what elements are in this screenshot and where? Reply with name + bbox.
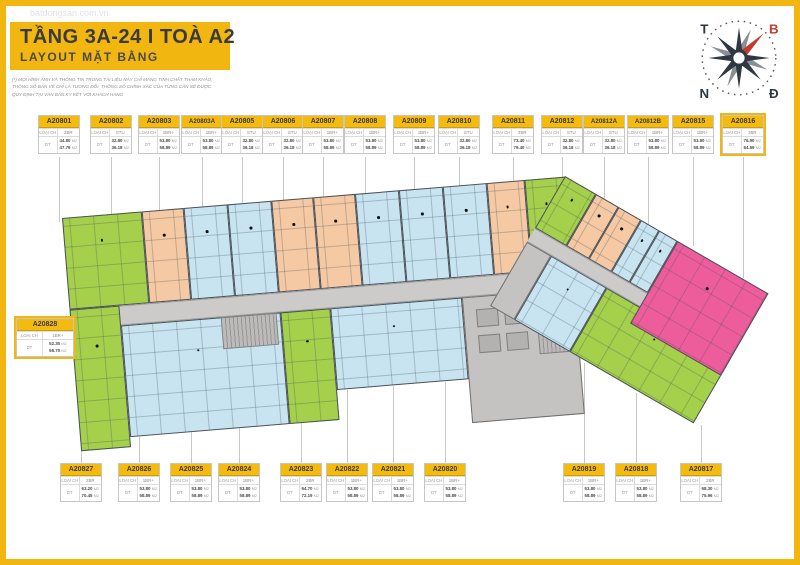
area-label: DT [345,137,364,153]
unit-card-id: A20815 [673,116,713,128]
type-label: LOẠI CH [681,477,700,484]
area-label: DT [119,485,138,501]
unit-card-id: A20801 [39,116,79,128]
unit-card-A20818: A20818LOẠI CH1BR+DT53.80 M258.89 M2 [615,463,657,502]
unit-areas: 53.80 M258.89 M2 [201,137,222,153]
unit-card-id: A20821 [373,464,413,476]
area-label: DT [628,137,647,153]
type-label: LOẠI CH [373,477,392,484]
unit-card-id: A20805 [222,116,262,128]
type-label: LOẠI CH [17,332,43,339]
type-label: LOẠI CH [39,129,58,136]
type-label: LOẠI CH [584,129,603,136]
unit-areas: 64.70 M272.19 M2 [300,485,321,501]
unit-areas: 52.30 M256.70 M2 [43,340,73,356]
area-label: DT [171,485,190,501]
area-label: DT [425,485,444,501]
unit-card-A20805: A20805LOẠI CHSTUDT32.80 M236.18 M2 [221,115,263,154]
unit-card-A20812A: A20812ALOẠI CHSTUDT32.80 M236.18 M2 [583,115,625,154]
unit-card-A20816: A20816LOẠI CH3BRDT76.90 M284.69 M2 [722,115,764,154]
plan-unit-A20806 [313,194,362,289]
area-label: DT [681,485,700,501]
unit-areas: 76.90 M284.69 M2 [742,137,763,153]
unit-type: STU [282,129,303,136]
unit-type: 2BR [512,129,533,136]
unit-card-id: A20807 [303,116,343,128]
unit-card-id: A20828 [17,319,73,331]
unit-type: STU [561,129,582,136]
unit-card-A20823: A20823LOẠI CH2BRDT64.70 M272.19 M2 [280,463,322,502]
unit-card-A20812B: A20812BLOẠI CH1BR+DT53.80 M258.89 M2 [627,115,669,154]
area-label: DT [219,485,238,501]
unit-card-id: A20812B [628,116,668,128]
unit-type: 1BR+ [647,129,668,136]
unit-card-A20828: A20828LOẠI CH1BR+DT52.30 M256.70 M2 [16,318,74,357]
type-label: LOẠI CH [564,477,583,484]
type-label: LOẠI CH [493,129,512,136]
unit-card-A20819: A20819LOẠI CH1BR+DT53.80 M258.89 M2 [563,463,605,502]
type-label: LOẠI CH [542,129,561,136]
unit-type: 2BR [80,477,101,484]
unit-areas: 53.80 M258.89 M2 [692,137,713,153]
unit-card-A20824: A20824LOẠI CH1BR+DT53.80 M258.89 M2 [218,463,260,502]
unit-areas: 53.80 M258.89 M2 [346,485,367,501]
unit-card-id: A20817 [681,464,721,476]
unit-areas: 53.80 M258.89 M2 [392,485,413,501]
area-label: DT [542,137,561,153]
unit-card-A20812: A20812LOẠI CHSTUDT32.80 M236.18 M2 [541,115,583,154]
type-label: LOẠI CH [628,129,647,136]
elevator-shaft [476,308,499,328]
type-label: LOẠI CH [119,477,138,484]
unit-card-A20801: A20801LOẠI CH2BRDT44.80 M247.79 M2 [38,115,80,154]
unit-card-id: A20802 [91,116,131,128]
area-label: DT [39,137,58,153]
unit-type: 3BR [742,129,763,136]
area-label: DT [673,137,692,153]
unit-type: 1BR+ [138,477,159,484]
plan-unit-A20809 [443,183,494,278]
area-label: DT [139,137,158,153]
unit-card-id: A20812 [542,116,582,128]
unit-card-id: A20806 [263,116,303,128]
elevator-shaft [478,334,501,354]
unit-card-id: A20826 [119,464,159,476]
type-label: LOẠI CH [171,477,190,484]
unit-card-A20809: A20809LOẠI CH1BR+DT53.80 M258.89 M2 [393,115,435,154]
type-label: LOẠI CH [263,129,282,136]
type-label: LOẠI CH [616,477,635,484]
area-label: DT [17,340,43,356]
area-label: DT [303,137,322,153]
unit-type: 1BR+ [392,477,413,484]
area-label: DT [281,485,300,501]
plan-unit-A20808 [399,187,450,282]
unit-type: STU [458,129,479,136]
unit-card-A20826: A20826LOẠI CH1BR+DT53.80 M258.89 M2 [118,463,160,502]
unit-areas: 53.80 M258.89 M2 [647,137,668,153]
area-label: DT [564,485,583,501]
area-label: DT [616,485,635,501]
unit-card-id: A20803 [139,116,179,128]
unit-card-A20808: A20808LOẠI CH1BR+DT53.80 M258.89 M2 [344,115,386,154]
unit-areas: 63.20 M270.45 M2 [80,485,101,501]
area-label: DT [263,137,282,153]
type-label: LOẠI CH [303,129,322,136]
unit-card-A20827: A20827LOẠI CH2BRDT63.20 M270.45 M2 [60,463,102,502]
unit-card-A20810: A20810LOẠI CHSTUDT32.80 M236.18 M2 [438,115,480,154]
type-label: LOẠI CH [91,129,110,136]
unit-type: 1BR+ [238,477,259,484]
unit-card-A20821: A20821LOẠI CH1BR+DT53.80 M258.89 M2 [372,463,414,502]
elevator-shaft [506,331,529,351]
unit-type: 1BR+ [635,477,656,484]
unit-card-id: A20827 [61,464,101,476]
plan-unit-A20803A [227,201,278,296]
unit-card-id: A20803A [182,116,222,128]
unit-type: 1BR+ [346,477,367,484]
area-label: DT [222,137,241,153]
area-label: DT [327,485,346,501]
unit-card-id: A20823 [281,464,321,476]
plan-unit-A20803 [184,204,235,299]
unit-type: 1BR+ [364,129,385,136]
unit-type: 1BR+ [583,477,604,484]
unit-areas: 53.80 M258.89 M2 [413,137,434,153]
type-label: LOẠI CH [439,129,458,136]
unit-card-id: A20810 [439,116,479,128]
unit-type: 2BR [300,477,321,484]
unit-card-A20803A: A20803ALOẠI CH1BR+DT53.80 M258.89 M2 [181,115,223,154]
type-label: LOẠI CH [723,129,742,136]
type-label: LOẠI CH [219,477,238,484]
unit-card-id: A20812A [584,116,624,128]
unit-card-id: A20820 [425,464,465,476]
plan-stairs-west [221,313,279,349]
unit-type: 2BR [700,477,721,484]
type-label: LOẠI CH [327,477,346,484]
unit-card-id: A20825 [171,464,211,476]
area-label: DT [394,137,413,153]
unit-areas: 32.80 M236.18 M2 [282,137,303,153]
unit-card-A20817: A20817LOẠI CH2BRDT68.30 M275.96 M2 [680,463,722,502]
area-label: DT [723,137,742,153]
unit-card-id: A20808 [345,116,385,128]
unit-areas: 44.80 M247.79 M2 [58,137,79,153]
unit-type: 1BR+ [322,129,343,136]
unit-type: STU [241,129,262,136]
unit-card-id: A20824 [219,464,259,476]
unit-card-A20820: A20820LOẠI CH1BR+DT53.80 M258.89 M2 [424,463,466,502]
unit-card-A20822: A20822LOẠI CH1BR+DT53.80 M258.89 M2 [326,463,368,502]
unit-areas: 53.80 M258.89 M2 [190,485,211,501]
unit-card-id: A20819 [564,464,604,476]
type-label: LOẠI CH [61,477,80,484]
unit-type: 1BR+ [413,129,434,136]
type-label: LOẠI CH [394,129,413,136]
unit-type: 1BR+ [158,129,179,136]
plan-unit-A20807 [355,190,406,285]
unit-card-A20811: A20811LOẠI CH2BRDT73.40 M279.40 M2 [492,115,534,154]
unit-areas: 53.80 M258.89 M2 [364,137,385,153]
unit-areas: 32.80 M236.18 M2 [561,137,582,153]
unit-type: 2BR [58,129,79,136]
unit-card-id: A20822 [327,464,367,476]
unit-areas: 32.80 M236.18 M2 [241,137,262,153]
unit-areas: 53.80 M258.89 M2 [635,485,656,501]
unit-card-A20806: A20806LOẠI CHSTUDT32.80 M236.18 M2 [262,115,304,154]
unit-type: 1BR+ [43,332,73,339]
unit-areas: 68.30 M275.96 M2 [700,485,721,501]
unit-card-A20815: A20815LOẠI CH1BR+DT53.80 M258.89 M2 [672,115,714,154]
plan-main-wing [62,177,585,458]
unit-type: STU [110,129,131,136]
area-label: DT [61,485,80,501]
area-label: DT [91,137,110,153]
unit-areas: 53.80 M258.89 M2 [583,485,604,501]
type-label: LOẠI CH [182,129,201,136]
type-label: LOẠI CH [673,129,692,136]
type-label: LOẠI CH [139,129,158,136]
type-label: LOẠI CH [345,129,364,136]
plan-unit-A20801 [62,211,149,309]
unit-type: 1BR+ [201,129,222,136]
unit-areas: 53.80 M258.89 M2 [238,485,259,501]
unit-card-id: A20811 [493,116,533,128]
area-label: DT [584,137,603,153]
plan-unit-A20802 [142,208,191,303]
unit-card-id: A20809 [394,116,434,128]
unit-areas: 32.80 M236.18 M2 [603,137,624,153]
unit-card-A20803: A20803LOẠI CH1BR+DT53.80 M258.89 M2 [138,115,180,154]
type-label: LOẠI CH [222,129,241,136]
unit-areas: 73.40 M279.40 M2 [512,137,533,153]
area-label: DT [182,137,201,153]
unit-areas: 53.80 M258.89 M2 [444,485,465,501]
unit-type: 1BR+ [444,477,465,484]
unit-type: 1BR+ [190,477,211,484]
plan-unit-A20823 [280,308,339,424]
unit-card-id: A20816 [723,116,763,128]
unit-card-id: A20818 [616,464,656,476]
unit-areas: 32.80 M236.18 M2 [110,137,131,153]
unit-areas: 32.80 M236.18 M2 [458,137,479,153]
area-label: DT [373,485,392,501]
unit-card-A20825: A20825LOẠI CH1BR+DT53.80 M258.89 M2 [170,463,212,502]
unit-areas: 53.80 M258.89 M2 [158,137,179,153]
unit-card-A20802: A20802LOẠI CHSTUDT32.80 M236.18 M2 [90,115,132,154]
type-label: LOẠI CH [425,477,444,484]
type-label: LOẠI CH [281,477,300,484]
unit-type: 1BR+ [692,129,713,136]
area-label: DT [493,137,512,153]
unit-card-A20807: A20807LOẠI CH1BR+DT53.80 M258.89 M2 [302,115,344,154]
plan-units-A20822-A20820 [330,298,468,391]
watermark: batdongsan.com.vn [30,8,109,18]
plan-unit-A20805 [271,197,320,292]
area-label: DT [439,137,458,153]
unit-type: STU [603,129,624,136]
unit-areas: 53.80 M258.89 M2 [322,137,343,153]
unit-areas: 53.80 M258.89 M2 [138,485,159,501]
